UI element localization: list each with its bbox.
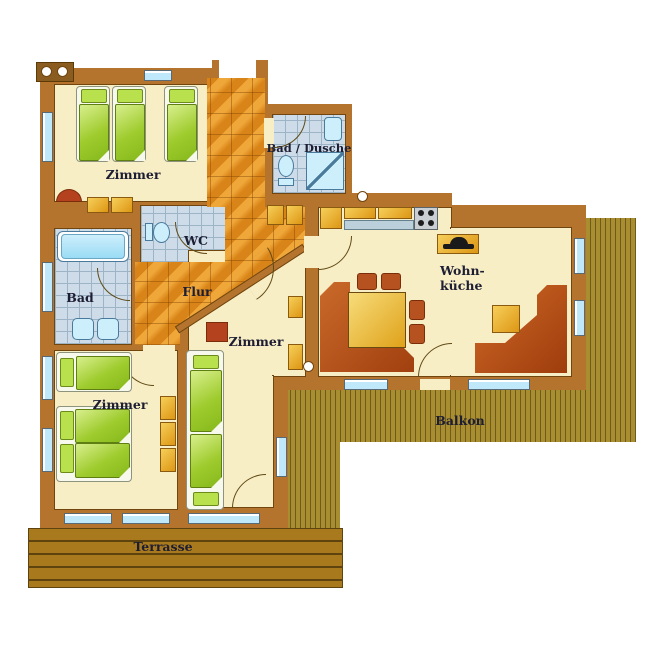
floor-plan: Terrasse Balkon: [0, 0, 660, 660]
dining-table: [348, 292, 406, 348]
dresser: [160, 448, 176, 472]
window: [122, 513, 170, 524]
bed-pillow: [60, 444, 74, 473]
window: [276, 437, 287, 477]
window: [468, 379, 530, 390]
chair: [357, 273, 377, 290]
bath-shower-label: Bad / Dusche: [264, 141, 354, 156]
shower: [306, 152, 344, 190]
bed-mattress: [167, 104, 197, 161]
wardrobe: [288, 296, 303, 318]
window: [344, 379, 388, 390]
bed-mattress: [76, 356, 130, 390]
bath-label: Bad: [58, 290, 102, 305]
bed-pillow: [81, 89, 107, 103]
living-kitchen-label-line1: Wohn-: [440, 263, 485, 278]
chair: [409, 300, 425, 320]
bed-mattress: [75, 443, 130, 478]
chair: [409, 324, 425, 344]
window: [188, 513, 260, 524]
toilet-tank: [145, 223, 153, 241]
wardrobe: [286, 205, 303, 225]
balcony-label: Balkon: [425, 413, 495, 428]
room-top-left-label: Zimmer: [100, 167, 166, 182]
wc-label: WC: [178, 233, 214, 248]
terrace-label: Terrasse: [118, 539, 208, 554]
dresser: [111, 197, 133, 213]
bed-mattress: [190, 434, 222, 488]
tv: [443, 244, 474, 249]
bed-mattress: [115, 104, 145, 161]
window: [42, 356, 53, 400]
bed-mattress: [75, 409, 130, 443]
living-kitchen-label-line2: küche: [440, 278, 482, 293]
stove-burner: [428, 220, 434, 226]
bed-pillow: [60, 358, 74, 387]
dresser: [87, 197, 109, 213]
post: [357, 191, 368, 202]
window: [64, 513, 112, 524]
hallway-label: Flur: [172, 284, 222, 299]
window: [42, 112, 53, 162]
sink: [72, 318, 94, 340]
stove-burner: [418, 210, 424, 216]
window: [42, 428, 53, 472]
wardrobe: [288, 344, 303, 370]
kitchen-counter: [344, 220, 414, 230]
dresser: [160, 396, 176, 420]
toilet-tank: [278, 178, 294, 186]
door-opening: [420, 379, 450, 390]
window: [42, 262, 53, 312]
bed-pillow: [193, 492, 219, 506]
nightstand: [206, 322, 228, 342]
post: [41, 66, 52, 77]
post: [303, 361, 314, 372]
living-kitchen-label: Wohn- küche: [440, 263, 510, 293]
bed-pillow: [60, 411, 74, 440]
toilet: [153, 222, 170, 243]
wardrobe: [267, 205, 284, 225]
kitchen-cabinet: [378, 207, 412, 219]
kitchen-cabinet: [344, 207, 376, 219]
window: [144, 70, 172, 81]
bed-pillow: [117, 89, 143, 103]
window: [574, 300, 585, 336]
sink: [97, 318, 119, 340]
window: [574, 238, 585, 274]
bed-mattress: [79, 104, 109, 161]
dresser: [160, 422, 176, 446]
kitchen-cabinet: [320, 207, 342, 229]
door-opening: [143, 345, 175, 353]
toilet: [278, 155, 294, 177]
side-table: [492, 305, 520, 333]
terrace-area: [28, 528, 343, 588]
entrance-opening: [219, 60, 256, 80]
stove-burner: [418, 220, 424, 226]
stove-burner: [428, 210, 434, 216]
post: [57, 66, 68, 77]
bed-pillow: [193, 355, 219, 369]
bed-mattress: [190, 370, 222, 432]
sink: [324, 117, 342, 141]
bed-pillow: [169, 89, 195, 103]
chair: [381, 273, 401, 290]
room-bottom-left-label: Zimmer: [88, 397, 152, 412]
bathtub-inner: [61, 234, 125, 259]
room-middle-label: Zimmer: [226, 334, 286, 349]
